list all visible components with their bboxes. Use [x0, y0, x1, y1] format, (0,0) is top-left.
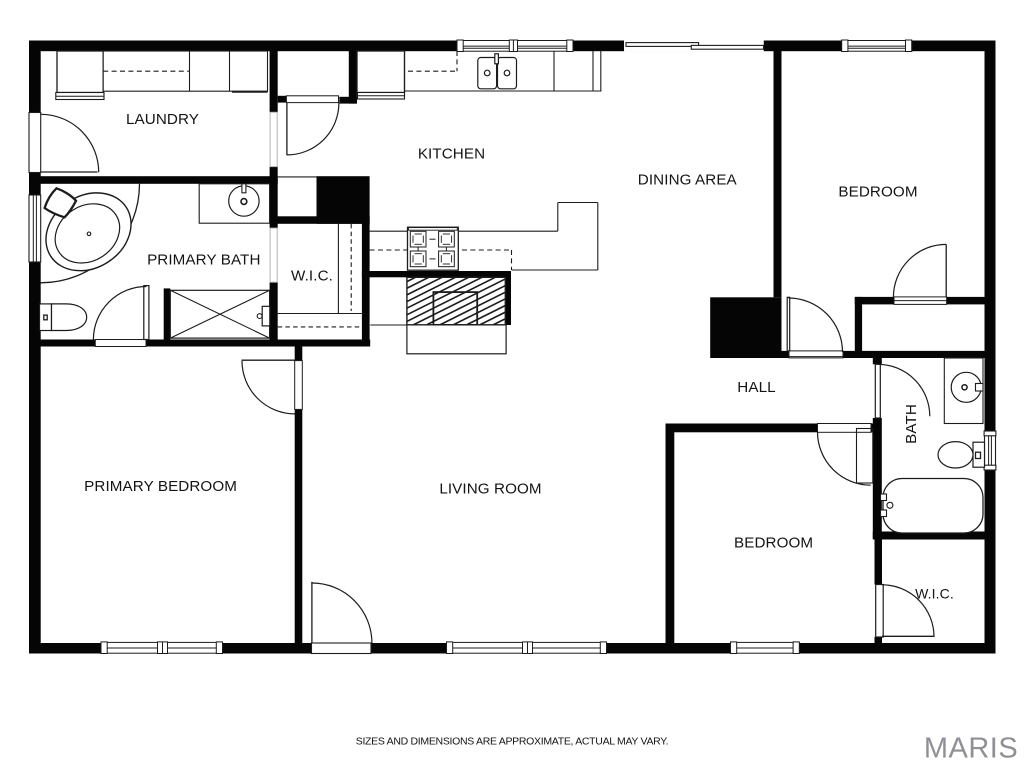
- svg-text:PRIMARY BATH: PRIMARY BATH: [147, 251, 260, 268]
- svg-text:W.I.C.: W.I.C.: [915, 586, 954, 602]
- svg-text:LAUNDRY: LAUNDRY: [126, 111, 199, 128]
- svg-text:HALL: HALL: [737, 379, 775, 396]
- svg-text:W.I.C.: W.I.C.: [291, 267, 333, 284]
- svg-text:BATH: BATH: [903, 404, 920, 444]
- svg-text:BEDROOM: BEDROOM: [734, 535, 813, 552]
- svg-text:PRIMARY BEDROOM: PRIMARY BEDROOM: [84, 478, 237, 495]
- svg-text:SIZES AND DIMENSIONS ARE APPRO: SIZES AND DIMENSIONS ARE APPROXIMATE, AC…: [356, 736, 669, 748]
- svg-text:KITCHEN: KITCHEN: [418, 146, 485, 163]
- svg-text:DINING AREA: DINING AREA: [638, 171, 738, 188]
- svg-text:LIVING ROOM: LIVING ROOM: [439, 481, 541, 498]
- svg-text:MARIS: MARIS: [924, 733, 1018, 765]
- svg-text:BEDROOM: BEDROOM: [838, 184, 917, 201]
